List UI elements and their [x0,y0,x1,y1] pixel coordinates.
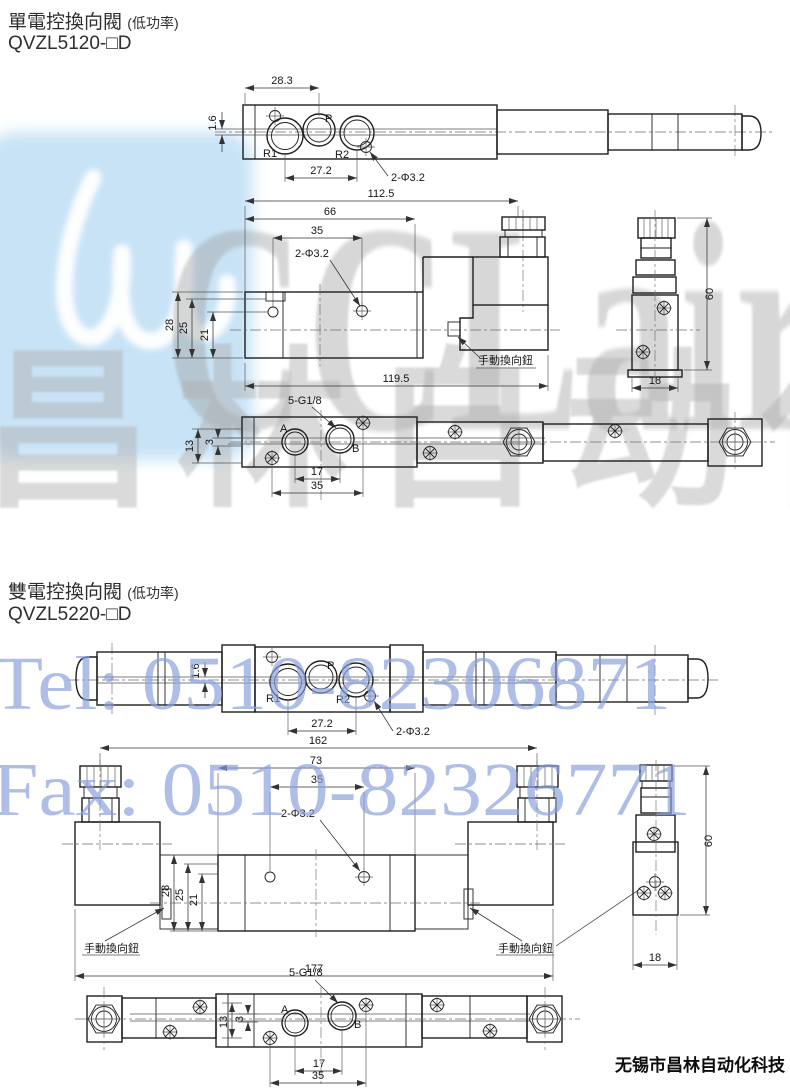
manual-override-label: 手動換向鈕 [478,353,533,367]
dim-label: 25 [178,322,190,334]
s1-side-view: 60 18 [616,210,716,392]
catalog-page: { "watermark": { "logo_text": "CCLair", … [0,0,790,1088]
dim-label: 13 [218,1016,230,1028]
footer-company-name: 无锡市昌林自动化科技 [615,1051,785,1076]
watermark-fax-text: Fax: 0510-82326771 [0,752,691,828]
thread-label: 5-G1/8 [289,967,323,979]
dim-label: 17 [311,466,323,478]
section2-title-main: 雙電控換向閥 [8,582,122,603]
section1-model: QVZL5120-□D [8,33,131,55]
dim-label: 21 [188,894,200,906]
dim-label: 13 [184,440,196,452]
section2-title: 雙電控換向閥 (低功率) [8,577,179,604]
dim-label: 162 [309,735,327,747]
port-label: P [325,113,332,125]
section2-model: QVZL5220-□D [8,604,131,626]
port-label: B [352,443,359,455]
dim-label: 1.6 [207,115,219,130]
port-label: A [281,1004,289,1016]
dim-label: 60 [704,288,716,300]
s1-top-view: R1 P R2 28.3 1.6 27.2 2-Φ3.2 [207,75,772,184]
dim-label: 119.5 [383,373,410,385]
s2-bottom-view: 5-G1/8 A B 13 3 17 35 [75,967,580,1087]
dim-label: 66 [324,206,336,218]
dim-label: 28.3 [271,75,292,87]
dim-label: 112.5 [368,188,395,200]
s1-front-view: 112.5 66 35 2-Φ3.2 119.5 28 25 21 手動換向鈕 [164,188,560,391]
manual-override-label: 手動換向鈕 [498,941,553,955]
section1-title-note: (低功率) [127,15,178,31]
port-label: A [280,423,288,435]
dim-label: 35 [311,480,323,492]
port-label: R2 [335,149,349,161]
dim-label: 27.2 [310,165,331,177]
dim-label: 25 [174,889,186,901]
watermark-tel-text: Tel: 0510-82306871 [0,646,671,722]
dim-label: 28 [164,319,176,331]
dim-label: 2-Φ3.2 [295,248,329,260]
port-label: B [354,1019,361,1031]
dim-label: 35 [312,1070,324,1082]
dim-label: 18 [649,952,661,964]
dim-label: 2-Φ3.2 [396,726,430,738]
dim-label: 17 [313,1058,325,1070]
port-label: R1 [263,148,277,160]
dim-label: 28 [160,885,172,897]
dim-label: 3 [204,439,216,445]
dim-label: 60 [703,835,715,847]
s1-bottom-view: 5-G1/8 A B 13 3 17 35 [184,395,775,500]
thread-label: 5-G1/8 [288,395,322,407]
section1-title-main: 單電控換向閥 [8,12,122,33]
dim-label: 18 [649,375,661,387]
dim-label: 21 [199,329,211,341]
section1-title: 單電控換向閥 (低功率) [8,7,179,34]
manual-override-label: 手動換向鈕 [84,941,139,955]
drawing-qvzl5120: R1 P R2 28.3 1.6 27.2 2-Φ3.2 112.5 66 35… [0,60,790,535]
dim-label: 35 [311,225,323,237]
dim-label: 2-Φ3.2 [391,172,425,184]
dim-label: 3 [234,1016,246,1022]
section2-title-note: (低功率) [127,585,178,601]
